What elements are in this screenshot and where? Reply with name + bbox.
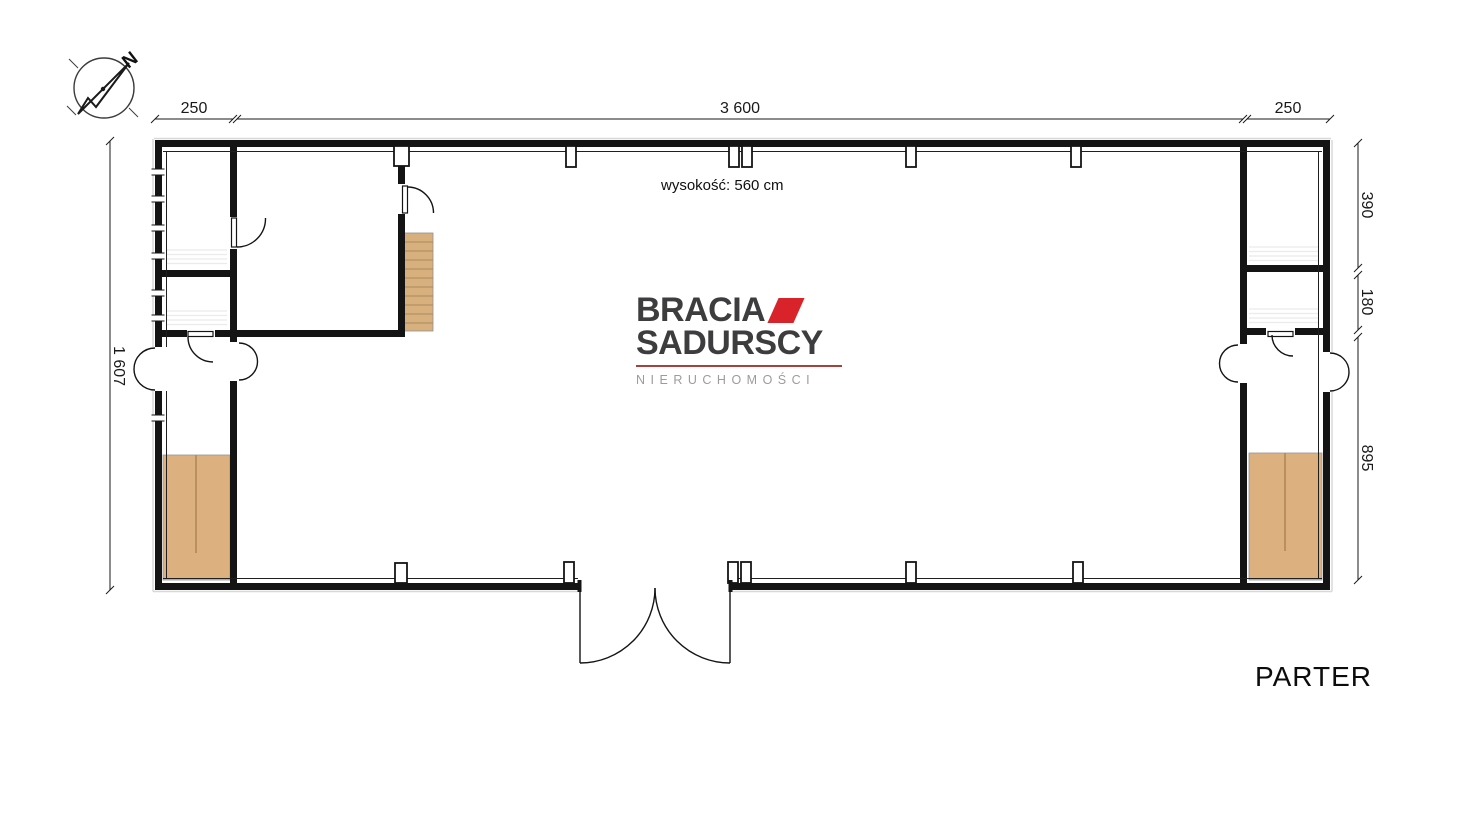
brand-tagline: NIERUCHOMOŚCI <box>636 373 848 387</box>
wood-ramp-left <box>163 455 230 580</box>
dimension-label-top-right: 250 <box>1275 100 1302 117</box>
brand-name-line2: SADURSCY <box>636 327 823 360</box>
ceiling-height-note: wysokość: 560 cm <box>661 177 784 194</box>
compass-icon: N <box>67 48 142 118</box>
wall-openings <box>151 184 1338 593</box>
brand-flag-icon <box>768 298 805 323</box>
floor-plan: 250 3 600 250 1 607 390 180 895 N <box>0 0 1457 820</box>
dimension-label-right-390: 390 <box>1358 192 1375 219</box>
floor-name-label: PARTER <box>1255 661 1372 693</box>
brand-name-line1: BRACIA <box>636 294 765 327</box>
dimension-label-right-180: 180 <box>1358 289 1375 316</box>
dimension-label-top-hall: 3 600 <box>720 100 760 117</box>
door-swing-left-hall <box>239 343 258 380</box>
brand-divider <box>636 365 842 367</box>
door-swing-right-hall <box>1220 345 1239 382</box>
brand-logo: BRACIA SADURSCY NIERUCHOMOŚCI <box>636 294 848 387</box>
dimension-label-left-total: 1 607 <box>110 346 127 386</box>
door-right-corridor <box>1268 332 1293 357</box>
door-room-a <box>232 218 266 247</box>
door-stairs-room <box>403 186 434 213</box>
dimension-label-right-895: 895 <box>1358 445 1375 472</box>
floor-plan-page: 250 3 600 250 1 607 390 180 895 N wysoko… <box>0 0 1457 820</box>
dimension-label-top-left: 250 <box>181 100 208 117</box>
wood-ramp-right <box>1249 453 1322 580</box>
staircase <box>404 233 433 331</box>
door-left-corridor <box>188 332 213 363</box>
